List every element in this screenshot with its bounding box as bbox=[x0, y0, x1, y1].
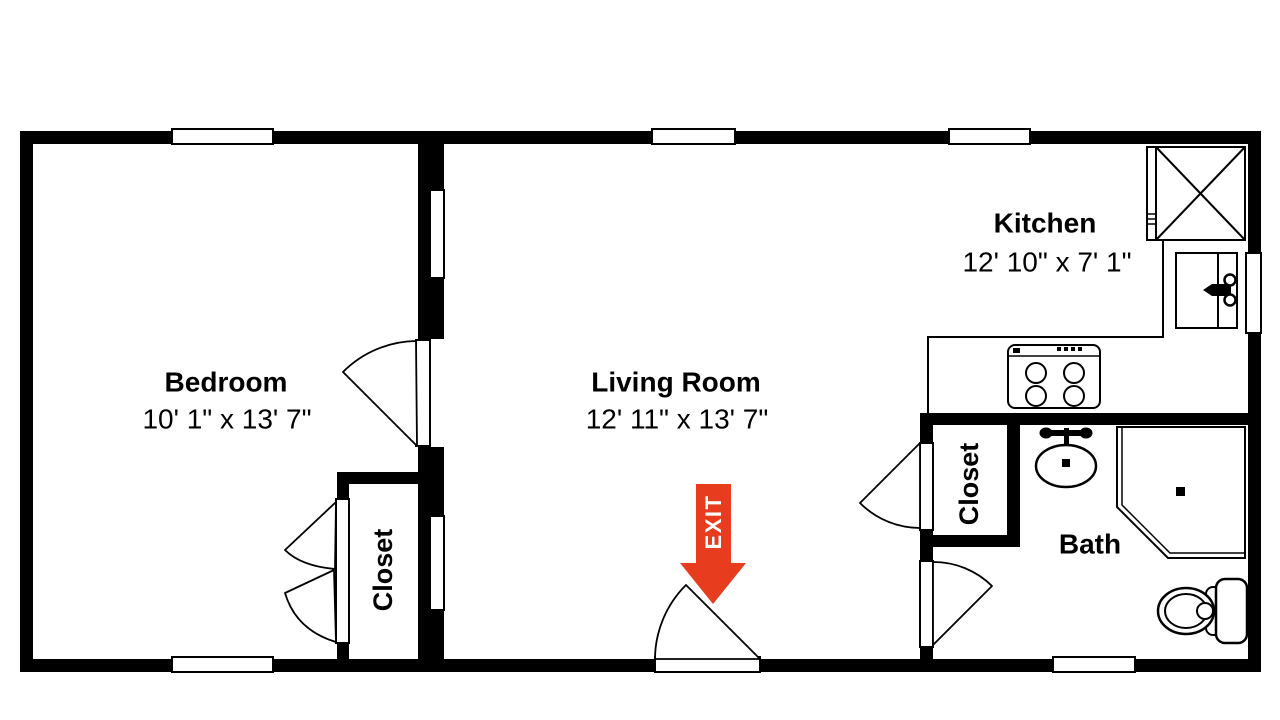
living-room-dimensions: 12' 11" x 13' 7" bbox=[586, 405, 769, 436]
window-bedroom-top bbox=[172, 129, 273, 144]
living-room-label: Living Room bbox=[591, 368, 761, 399]
wall-bathcloset-bottom bbox=[920, 535, 1020, 547]
door-swing-bedroom bbox=[343, 341, 417, 446]
wall-bedcloset-top bbox=[337, 472, 444, 484]
window-kitchen-right bbox=[1246, 253, 1261, 333]
cabinet-x-icon bbox=[1147, 147, 1245, 240]
bifold-door-lower bbox=[285, 570, 336, 642]
wall-left bbox=[20, 131, 33, 672]
door-panel-bathcloset bbox=[920, 443, 933, 530]
bath-sink-icon bbox=[1036, 428, 1096, 488]
floor-plan: Bedroom 10' 1" x 13' 7" Living Room 12' … bbox=[0, 0, 1280, 720]
shower-icon bbox=[1117, 427, 1245, 558]
bifold-door-upper bbox=[285, 502, 336, 569]
bath-label: Bath bbox=[1059, 530, 1121, 561]
wall-right bbox=[1248, 131, 1261, 672]
wall-kitchen-bath bbox=[920, 413, 1248, 425]
toilet-icon bbox=[1158, 579, 1247, 643]
bath-closet-label: Closet bbox=[955, 443, 985, 526]
window-living-top bbox=[652, 129, 735, 144]
kitchen-fixtures bbox=[928, 147, 1245, 413]
bedroom-label: Bedroom bbox=[165, 368, 288, 399]
kitchen-dimensions: 12' 10" x 7' 1" bbox=[962, 248, 1131, 279]
window-bath-bottom bbox=[1053, 657, 1135, 672]
exit-label: EXIT bbox=[702, 495, 726, 550]
wall-bedcloset-left-a bbox=[337, 484, 349, 500]
bedroom-closet-label: Closet bbox=[369, 529, 399, 612]
window-bedroom-bottom bbox=[172, 657, 273, 672]
panel-innerwall-lower bbox=[430, 516, 444, 610]
door-panel-bedroom bbox=[416, 340, 430, 446]
floor-plan-drawing bbox=[0, 0, 1280, 720]
panel-innerwall-upper bbox=[430, 190, 444, 278]
kitchen-label: Kitchen bbox=[994, 209, 1097, 240]
window-kitchen-top bbox=[949, 129, 1030, 144]
wall-bathcloset-right bbox=[1007, 425, 1020, 547]
kitchen-sink-icon bbox=[1176, 253, 1237, 328]
bedroom-dimensions: 10' 1" x 13' 7" bbox=[142, 405, 311, 436]
door-panel-bedcloset bbox=[336, 499, 349, 643]
door-swing-bathcloset bbox=[860, 443, 920, 528]
door-swing-bath bbox=[933, 562, 992, 645]
door-panel-bath bbox=[920, 561, 933, 647]
stove-icon bbox=[1008, 345, 1100, 408]
